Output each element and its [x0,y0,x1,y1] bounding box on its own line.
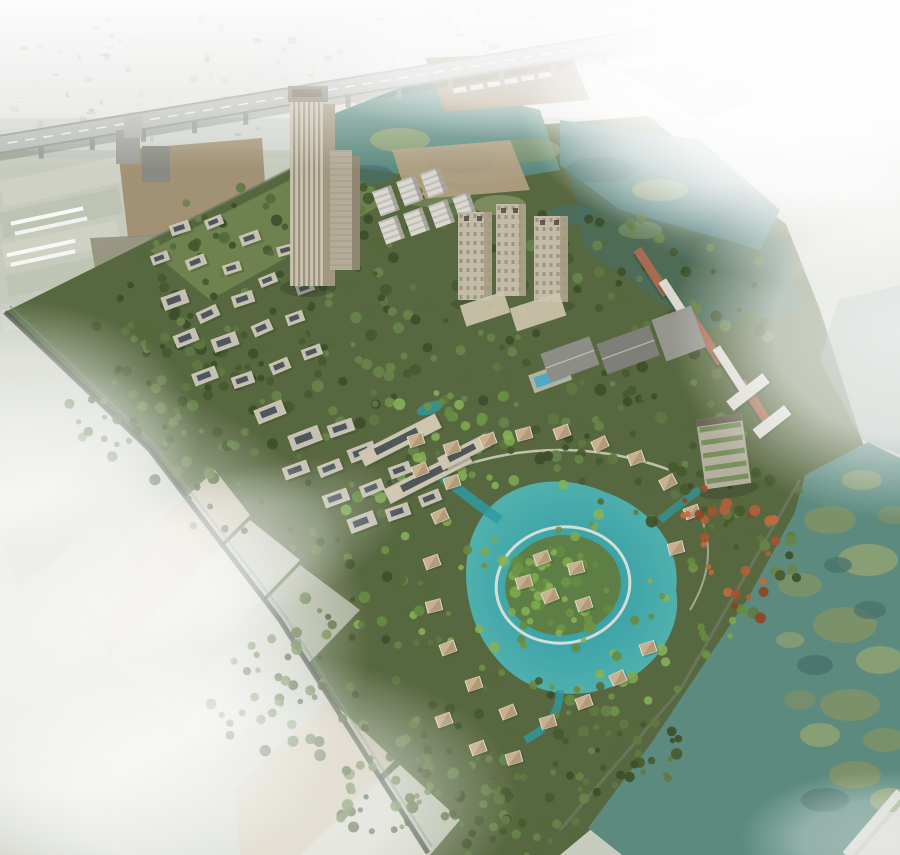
tree [575,455,584,464]
tree [578,726,589,737]
roof-detail [464,216,469,221]
tree [481,563,487,569]
tree [688,483,694,489]
tree [593,788,601,796]
tree [405,454,411,460]
tree [566,383,578,395]
tree [617,731,623,737]
tree [670,490,679,499]
tree [373,366,384,377]
tree [547,838,553,844]
tree [430,355,437,362]
tree [314,370,322,378]
tree [548,413,560,425]
tree [755,612,766,623]
tree [700,533,710,543]
tree [299,338,306,345]
tree [722,498,733,509]
tree [633,736,642,745]
tree [390,547,401,558]
tree [598,498,605,505]
tree [769,515,779,525]
tree [456,345,466,355]
tree [633,510,638,515]
tree [427,583,439,595]
tree [240,331,247,338]
tree [562,596,568,602]
tree [235,364,242,371]
tree [570,576,582,588]
tree [750,533,755,538]
tree [394,398,406,410]
tower-side [484,212,492,300]
tree [419,572,426,579]
tree [722,539,728,545]
tree [649,614,655,620]
tree [359,183,368,192]
tree [547,619,554,626]
tree [153,240,160,247]
tree [553,464,561,472]
tree [257,344,267,354]
tree [508,608,516,616]
tree [545,793,555,803]
tree [671,748,682,759]
tree [584,615,593,624]
tree [474,709,484,719]
tree [572,644,581,653]
tree [229,242,236,249]
tree [397,575,406,584]
tree [394,641,402,649]
tree [401,532,410,541]
tree [359,230,369,240]
tree [685,511,691,517]
tree [311,311,317,317]
tree [372,400,379,407]
tree [622,369,630,377]
tree [388,307,397,316]
tree [373,271,378,276]
tree [668,462,679,473]
tree [499,345,505,351]
tree [629,431,636,438]
tree [489,642,500,653]
tree [655,412,667,424]
tree [731,603,738,610]
tree [603,239,609,245]
tree [553,729,564,740]
tree [648,757,656,765]
tree [325,300,333,308]
tree [697,623,704,630]
tree [355,356,363,364]
tree [195,215,202,222]
tree [363,427,370,434]
roof-detail [513,208,518,213]
tree [699,629,706,636]
tree [328,340,337,349]
tree [624,772,634,782]
tree [509,475,520,486]
tree [260,399,265,404]
tree [562,444,569,451]
tree [507,347,517,357]
tree [731,590,740,599]
roof-detail [554,220,559,225]
tree [533,833,541,841]
roof-detail [501,208,506,213]
water-mottle [800,723,840,747]
tree [478,330,484,336]
tree [601,705,612,716]
tree [454,400,464,410]
tree [312,380,324,392]
tree [686,422,695,431]
tower-side [352,156,360,270]
tree [561,577,571,587]
tree [667,727,677,737]
tree [377,663,384,670]
tree [498,669,505,676]
tree [634,750,642,758]
tree [600,765,607,772]
tree [262,203,269,210]
tree [514,402,519,407]
scene-svg [0,0,900,855]
tree [572,817,581,826]
tree [282,223,289,230]
tree [531,601,540,610]
tree [729,617,737,625]
tree [413,639,420,646]
tree [370,389,377,396]
tree [423,300,434,311]
tree [584,433,590,439]
tree [382,572,393,583]
tree [473,401,479,407]
tree [535,677,543,685]
tree [630,616,639,625]
tower-side [519,204,526,296]
tree [403,609,409,615]
tree [338,377,347,386]
tree [350,312,361,323]
tree [490,674,501,685]
tree [527,618,533,624]
tree [612,782,618,788]
tree [410,284,417,291]
tree [549,684,555,690]
tree [375,240,386,251]
tree [670,738,675,743]
tree [548,546,553,551]
tree [202,278,209,285]
tree [640,722,646,728]
tree [475,625,483,633]
tree [589,521,594,526]
tree [231,203,237,209]
tree [380,284,392,296]
tree [606,731,612,737]
tree [271,215,283,227]
tree [596,458,604,466]
tree [269,308,276,315]
tree [608,693,615,700]
tree [645,481,654,490]
tree [486,474,492,480]
tree [492,363,501,372]
tree [592,241,602,251]
tree [571,617,577,623]
tree [515,335,521,341]
tree [377,616,387,626]
tree [617,267,626,276]
tree [566,609,574,617]
tree [584,214,593,223]
tree [127,322,134,329]
tree [708,507,718,517]
tree [342,280,354,292]
tree [612,747,619,754]
tree [492,482,499,489]
tree [362,359,373,370]
tree [192,360,203,371]
tree [661,657,670,666]
tree [740,566,750,576]
tree [532,846,539,853]
tree [547,691,555,699]
tree [701,485,708,492]
roof-detail [540,220,545,225]
tree [519,621,527,629]
tree [487,333,496,342]
roof-detail [477,216,482,221]
tree [410,364,421,375]
tree [581,422,586,427]
tree [318,357,327,366]
water-mottle [820,689,880,721]
tree [553,761,559,767]
tree [550,770,555,775]
tree [517,635,525,643]
tree [224,326,231,333]
tree [468,471,475,478]
tree [234,327,239,332]
tree [400,353,407,360]
tree [444,411,450,417]
tree [574,828,582,836]
tree [410,315,420,325]
tree [623,397,632,406]
tree [385,363,395,373]
tree [424,402,432,410]
tree [562,738,569,745]
tree [583,779,589,785]
tree [623,391,630,398]
water-mottle [797,655,833,675]
tree [651,393,657,399]
tree [213,233,219,239]
tree [518,819,526,827]
tree [630,761,638,769]
tree [723,588,733,598]
tree [525,558,533,566]
tree [706,564,712,570]
tree [158,274,167,283]
tree [219,232,230,243]
tree [364,215,373,224]
tree [443,318,449,324]
tree [378,294,385,301]
tree [727,633,732,638]
tree [701,542,707,548]
tree [203,390,213,400]
tree [552,819,561,828]
tree [573,686,580,693]
tree [176,317,185,326]
tree [423,343,433,353]
tree [675,735,683,743]
tree [595,748,600,753]
tree [159,283,169,293]
tree [619,719,629,729]
tree [160,332,170,342]
tree [618,405,624,411]
tree [588,747,595,754]
tree [578,439,586,447]
tree [689,442,696,449]
tree [350,342,355,347]
tree [610,381,616,387]
tree [506,336,515,345]
tree [636,276,642,282]
tree [140,321,152,333]
tree [219,382,229,392]
tree [521,607,530,616]
tree [668,756,673,761]
tree [268,250,274,256]
tree [616,770,625,779]
tree [463,375,469,381]
tree [507,447,514,454]
tree [491,537,497,543]
tree [428,640,433,645]
tree [479,665,485,671]
tree [532,329,540,337]
tree [187,313,193,319]
tree [458,565,464,571]
tree [589,720,596,727]
tree [463,545,472,554]
tree [612,651,622,661]
tree [522,358,531,367]
tree [382,635,391,644]
tree [540,819,552,831]
tree [266,194,276,204]
aerial-render [0,0,900,855]
tree [543,451,553,461]
tree [664,775,672,783]
tree [593,509,604,520]
tree [674,685,681,692]
tree [210,293,218,301]
tree [304,390,312,398]
tree [436,636,443,643]
tree [565,695,576,706]
tower-side [560,216,568,302]
tree [603,587,609,593]
tree [461,421,470,430]
tree [248,348,258,358]
tree [759,540,770,551]
tree [480,548,489,557]
tree [414,606,425,617]
tree [579,380,584,385]
tree [503,374,510,381]
tree [765,551,770,556]
tree [555,629,562,636]
water-mottle [824,557,852,573]
tree [258,375,265,382]
tree [579,793,589,803]
tree [577,786,583,792]
tree [682,498,687,503]
tree [785,551,793,559]
tree [509,730,515,736]
tree [688,563,698,573]
tree [659,593,665,599]
tree [760,577,767,584]
tree [328,406,337,415]
tree [438,398,445,405]
tree [522,566,531,575]
tree [785,535,797,547]
tree [584,621,596,633]
tree [709,570,714,575]
tree [193,238,202,247]
tree [577,553,583,559]
tree [607,453,618,464]
tree [746,594,752,600]
tree [497,555,509,567]
tree [363,193,375,205]
tree [581,637,587,643]
tree [695,510,705,520]
tree [258,361,264,367]
tree [183,199,191,207]
tree [555,527,562,534]
tree [646,516,658,528]
tree [365,329,377,341]
tree [592,562,599,569]
tree [393,322,404,333]
tree [759,587,769,597]
tree [185,347,195,357]
tree [503,430,513,440]
tree [216,270,221,275]
tree [575,772,583,780]
tree [434,390,440,396]
tree [418,628,425,635]
tree [117,295,124,302]
tree [520,774,527,781]
tree [236,183,246,193]
tree [733,544,739,550]
tree [419,452,425,458]
tree [572,273,583,284]
tree [435,451,440,456]
